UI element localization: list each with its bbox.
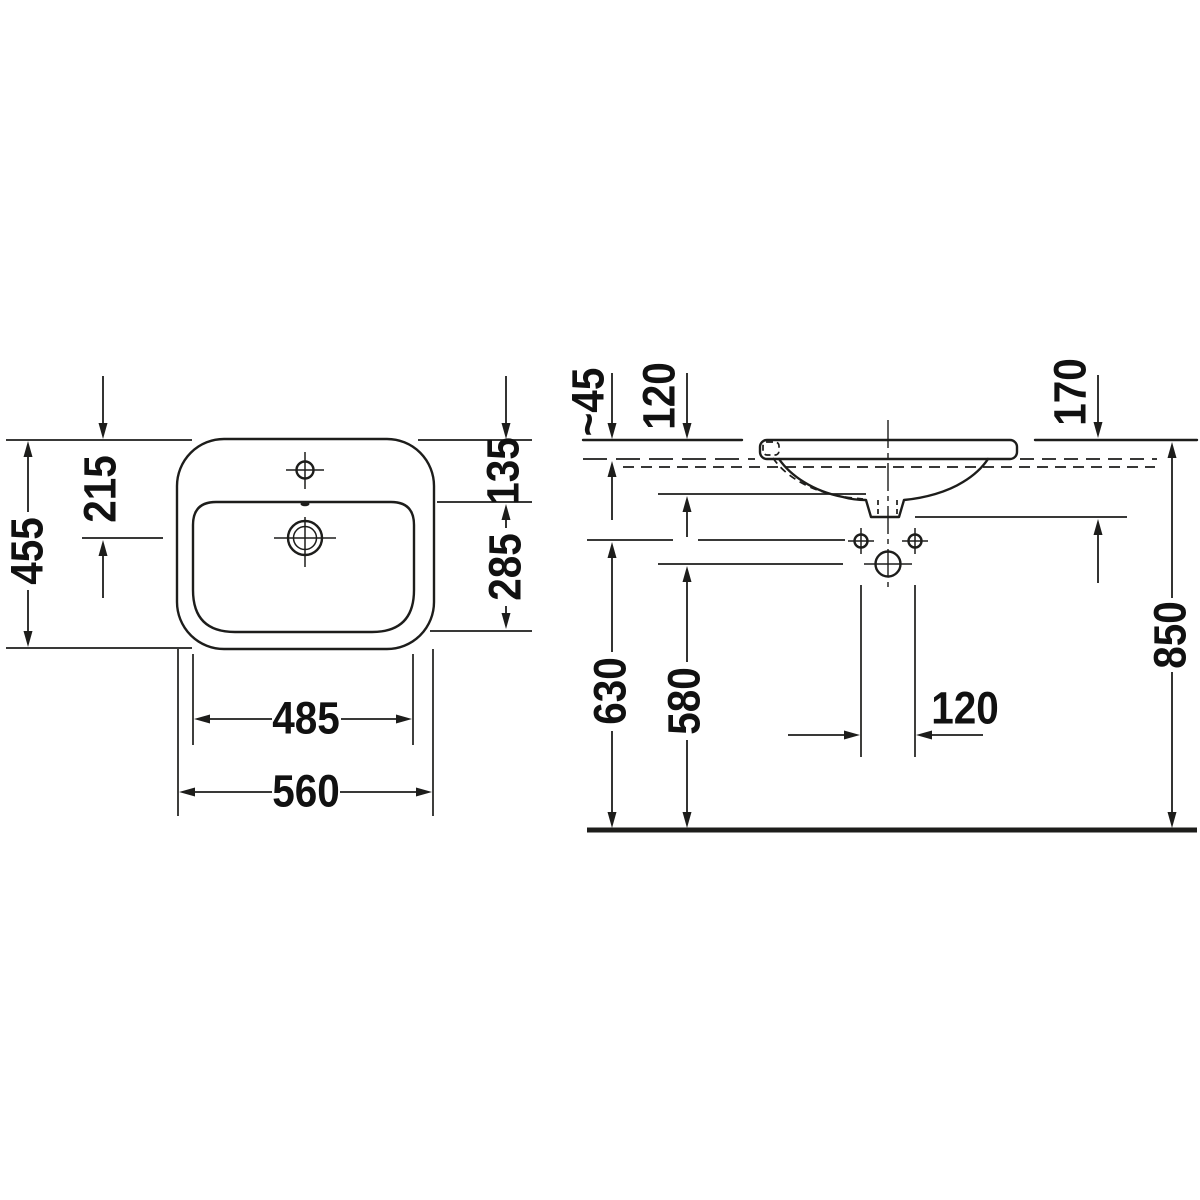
dim-label-170: 170 (1046, 358, 1096, 426)
dim-label-485: 485 (272, 694, 340, 744)
dim-section-counter-to-underside: 120 (635, 362, 692, 537)
washbasin-dimension-drawing: 455 215 135 285 485 (0, 0, 1200, 1200)
dim-label-135: 135 (479, 437, 529, 505)
rim-hidden-profile (763, 442, 779, 455)
tap-hole (286, 452, 324, 489)
dim-label-215: 215 (76, 455, 126, 523)
dim-plan-top-edge-to-bowl: 135 (479, 376, 529, 505)
dim-label-120-bottom: 120 (931, 684, 999, 734)
dim-plan-overall-width: 560 (179, 767, 432, 817)
dim-plan-overall-depth: 455 (3, 441, 53, 647)
dim-section-floor-to-outlet: 580 (660, 566, 710, 828)
dim-label-850: 850 (1146, 601, 1196, 669)
dim-plan-top-edge-to-drain: 215 (76, 376, 126, 598)
bowl-inner-hidden (773, 458, 863, 499)
section-reference-lines (587, 494, 1127, 564)
drain-plan (274, 517, 336, 567)
plan-view: 455 215 135 285 485 (3, 376, 532, 817)
dim-label-120-top: 120 (635, 362, 685, 430)
dim-section-counter-thickness: ~45 (564, 368, 617, 520)
dim-section-fixing-hole-spacing: 120 (788, 585, 999, 757)
dim-section-counter-to-outlet: 170 (1046, 358, 1103, 583)
dim-label-630: 630 (586, 657, 636, 725)
countertop (583, 440, 1197, 467)
dim-label-560: 560 (272, 767, 340, 817)
basin-section (760, 420, 1017, 588)
dim-label-580: 580 (660, 667, 710, 735)
dim-section-floor-to-rim: 850 (1146, 442, 1196, 828)
dim-plan-bowl-depth: 285 (481, 504, 531, 629)
section-view: ~45 120 170 630 580 (564, 358, 1197, 830)
dim-label-285: 285 (481, 533, 531, 601)
dim-section-floor-to-fixing-holes: 630 (586, 542, 636, 828)
dim-plan-bowl-width: 485 (194, 694, 412, 744)
overflow-slot (301, 502, 310, 507)
dim-label-45: ~45 (564, 368, 614, 437)
dim-label-455: 455 (3, 517, 53, 585)
